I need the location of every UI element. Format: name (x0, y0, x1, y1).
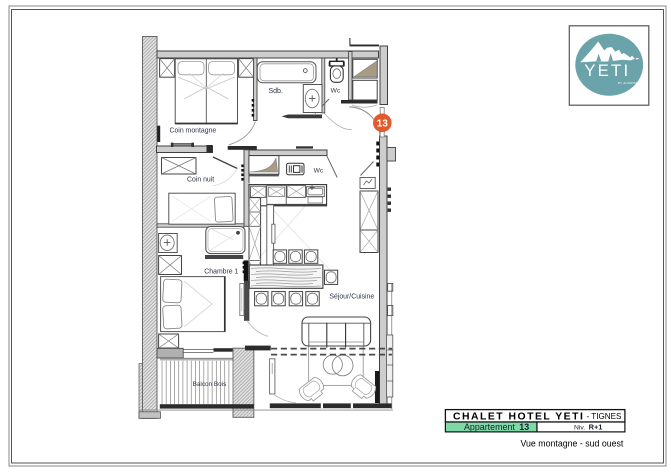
svg-text:Vue montagne - sud ouest: Vue montagne - sud ouest (521, 438, 624, 448)
svg-text:Wc: Wc (314, 168, 324, 175)
svg-text:Coin nuit: Coin nuit (187, 176, 214, 183)
svg-text:CHALET HOTEL YETI: CHALET HOTEL YETI (453, 411, 584, 422)
svg-text:YETI: YETI (584, 61, 630, 80)
svg-text:Appartement 13: Appartement 13 (464, 422, 529, 432)
svg-text:- TIGNES: - TIGNES (587, 412, 623, 421)
svg-text:Sdb.: Sdb. (269, 88, 283, 95)
svg-text:Balcon Bois: Balcon Bois (193, 381, 227, 388)
svg-text:BY ALPAPART: BY ALPAPART (618, 81, 640, 85)
svg-text:Séjour/Cuisine: Séjour/Cuisine (329, 293, 374, 300)
svg-text:Coin montagne: Coin montagne (170, 128, 217, 135)
svg-text:Wc: Wc (331, 87, 341, 94)
svg-text:Niv. R+1: Niv. R+1 (574, 423, 602, 432)
svg-text:Chambre 1: Chambre 1 (204, 269, 238, 276)
svg-text:13: 13 (377, 119, 389, 130)
